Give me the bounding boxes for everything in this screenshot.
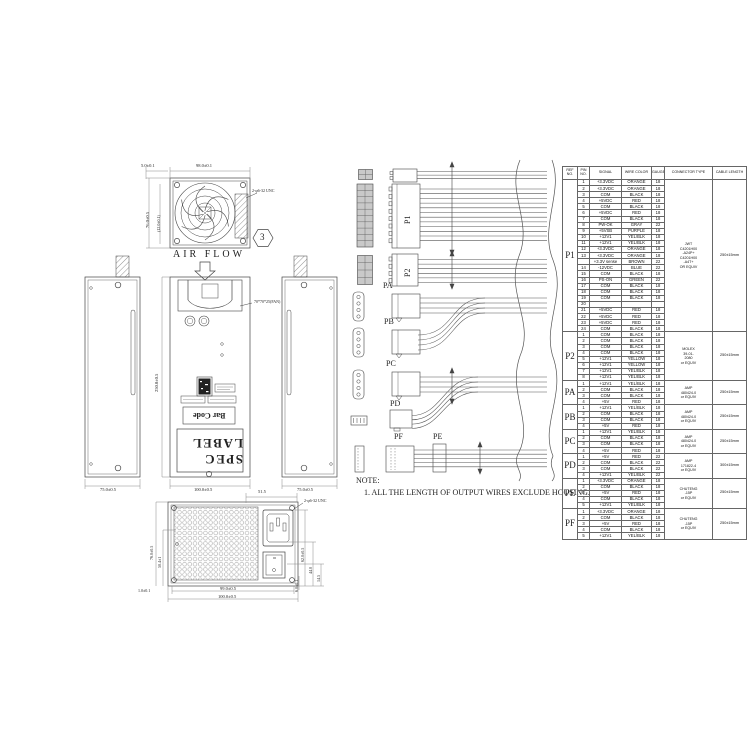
- dim-rear-bottom-2: 100.0±0.5: [218, 595, 236, 600]
- note-line: 1. ALL THE LENGTH OF OUTPUT WIRES EXCLUD…: [364, 489, 590, 497]
- dim-fan-width: 98.0±0.1: [196, 164, 212, 169]
- dim-rear-right-3: 14.5: [317, 575, 321, 582]
- air-flow-label: AIR FLOW: [173, 250, 245, 260]
- dim-rear-bottom-1: 99.0±0.5: [220, 587, 236, 592]
- side-view-left: [85, 256, 140, 477]
- cell: 18: [652, 533, 665, 539]
- pc-connector: [392, 372, 420, 400]
- col-header: SIGNAL: [590, 167, 622, 180]
- pf-label: PF: [394, 433, 403, 441]
- pc-label: PC: [386, 360, 396, 368]
- length-cell: 250±15mm: [713, 405, 747, 429]
- balloon-number: 3: [260, 233, 265, 242]
- length-cell: 250±15mm: [713, 509, 747, 539]
- col-header: PIN NO.: [578, 167, 590, 180]
- cell: YEL/BLK: [622, 533, 652, 539]
- dim-center-view-width: 100.0±0.5: [194, 488, 212, 493]
- harness: [351, 160, 557, 481]
- pa-connector: [392, 294, 420, 322]
- col-header: GAUGE: [652, 167, 665, 180]
- connector-cell: AMP 480424-0 or EQUIV: [665, 405, 713, 429]
- length-cell: 250±15mm: [713, 478, 747, 508]
- pb-connector: [392, 330, 420, 358]
- note-title: NOTE:: [356, 477, 380, 485]
- dim-rear-bottom-left: 1.0±0.1: [138, 589, 150, 593]
- table-body: P11+3.3VDCORANGE18JWT C4201H00 -A24P+ C4…: [563, 180, 747, 540]
- length-cell: 300±15mm: [713, 454, 747, 478]
- connector-cell: AMP 480424-0 or EQUIV: [665, 381, 713, 405]
- pe-label: PE: [433, 433, 442, 441]
- p1-connector: [389, 169, 420, 248]
- dim-left-view-width: 75.0±0.5: [100, 488, 116, 493]
- ref-cell: PA: [563, 381, 578, 405]
- ref-cell: P2: [563, 332, 578, 381]
- pb-label: PB: [384, 318, 394, 326]
- dim-rear-top: 51.5: [258, 490, 266, 495]
- length-cell: 250±15mm: [713, 381, 747, 405]
- connector-cell: JWT C4201H00 -A24P+ C4201H00 -A4T+ OR EQ…: [665, 180, 713, 332]
- ref-cell: PC: [563, 429, 578, 453]
- connector-front-views: [351, 170, 373, 473]
- p1-label: P1: [404, 216, 412, 224]
- pa-label: PA: [383, 282, 393, 290]
- pinout-table: REF NO.PIN NO.SIGNALWIRE COLORGAUGECONNE…: [562, 166, 747, 540]
- length-cell: 250±15mm: [713, 180, 747, 332]
- pinout-table-wrap: REF NO.PIN NO.SIGNALWIRE COLORGAUGECONNE…: [562, 166, 746, 540]
- fan-screw-note: 2-φ6-32 UNC: [252, 189, 274, 193]
- connector-cell: CHUTENG -15P or EQUIV: [665, 478, 713, 508]
- bar-code-label: Bar Code: [193, 411, 226, 420]
- col-header: REF NO.: [563, 167, 578, 180]
- p2-label: P2: [404, 269, 412, 277]
- side-view-right: [282, 256, 337, 477]
- ref-cell: PF: [563, 509, 578, 539]
- rear-view: [168, 502, 303, 586]
- fan-size-note: 70*70*25(FAN): [254, 300, 280, 304]
- ref-cell: PD: [563, 454, 578, 478]
- col-header: CONNECTOR TYPE: [665, 167, 713, 180]
- dim-right-view-width: 75.0±0.5: [297, 488, 313, 493]
- ref-cell: PE: [563, 478, 578, 508]
- cell: +12V1: [590, 533, 622, 539]
- length-cell: 250±15mm: [713, 332, 747, 381]
- dim-rear-left-2: 50.4±1: [158, 557, 162, 568]
- dim-rear-right-bottom: 6.0±0.1: [295, 580, 299, 592]
- connector-cell: CHUTENG -15P or EQUIV: [665, 509, 713, 539]
- ref-cell: P1: [563, 180, 578, 332]
- col-header: WIRE COLOR: [622, 167, 652, 180]
- table-header-row: REF NO.PIN NO.SIGNALWIRE COLORGAUGECONNE…: [563, 167, 747, 180]
- dim-fan-inset: 5.0±0.1: [141, 164, 155, 169]
- dim-rear-right-2: 44.0: [309, 567, 313, 574]
- break-lines: [515, 160, 557, 481]
- dim-depth: 250.0±0.5: [155, 374, 160, 392]
- cell: 5: [578, 533, 590, 539]
- connector-cell: MOLEX 39-01- 2080 or EQUIV: [665, 332, 713, 381]
- pd-connector: [390, 410, 412, 431]
- bar-code-box: Bar Code: [183, 407, 235, 424]
- drawing-canvas: 5.0±0.1 98.0±0.1 2-φ6-32 UNC 76.0±0.5 (1…: [0, 0, 750, 750]
- pd-label: PD: [390, 400, 400, 408]
- col-header: CABLE LENGTH: [713, 167, 747, 180]
- connector-cell: AMP 480424-0 or EQUIV: [665, 429, 713, 453]
- rear-screw-note: 2-φ6-32 UNC: [304, 499, 326, 503]
- spec-label: SPEC LABEL: [177, 435, 243, 467]
- pf-connector: [386, 446, 414, 472]
- length-cell: 250±15mm: [713, 429, 747, 453]
- connector-cell: AMP 171822-4 or EQUIV: [665, 454, 713, 478]
- spec-label-box: SPEC LABEL: [177, 429, 243, 472]
- dim-fan-height: 76.0±0.5: [146, 212, 151, 228]
- pe-connector: [433, 444, 446, 472]
- dim-fan-inner: (12.0±0.1): [157, 215, 161, 232]
- dim-rear-right-1: 62.0±0.5: [301, 548, 305, 562]
- dim-rear-left-1: 76.0±0.5: [150, 546, 154, 560]
- ref-cell: PB: [563, 405, 578, 429]
